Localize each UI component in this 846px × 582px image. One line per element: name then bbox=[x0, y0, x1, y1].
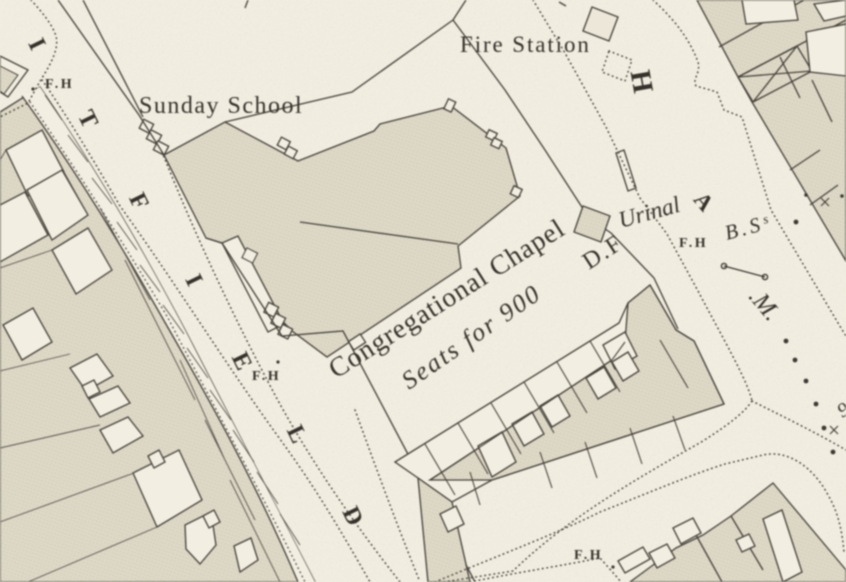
svg-text:Fire Station: Fire Station bbox=[460, 32, 591, 57]
svg-text:F.H: F.H bbox=[45, 77, 74, 92]
svg-text:F.H: F.H bbox=[574, 548, 603, 563]
svg-text:F.H: F.H bbox=[679, 236, 708, 251]
svg-text:F.H: F.H bbox=[252, 369, 281, 384]
svg-text:Sunday School: Sunday School bbox=[139, 93, 303, 119]
